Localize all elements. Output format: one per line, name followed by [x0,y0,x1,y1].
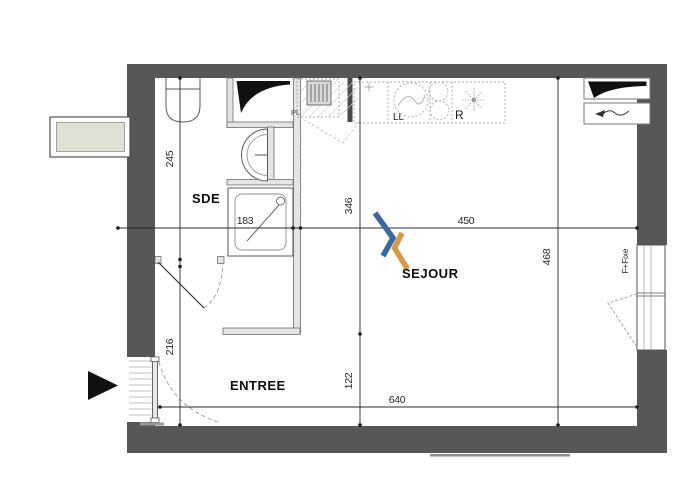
corner-shelf-icon [237,81,291,113]
dim-label-216: 216 [164,338,176,355]
dim-label-468: 468 [541,248,553,265]
door-threshold [140,423,164,426]
label-fridge: R [455,108,464,122]
entrance-door-swing [159,362,221,423]
logo-blue-chevron [375,213,393,256]
wall-top [127,64,667,78]
sde-door [158,262,223,308]
planter-inner [57,123,125,152]
water-heater-icon [307,81,331,105]
door-hinge-bottom [151,418,159,423]
floorplan-drawing: SDE ENTREE SEJOUR PL LL R F+Fixe 245 216… [0,0,700,494]
logo-orange-chevron [395,233,408,269]
logo-watermark [375,213,408,269]
floorplan-canvas: SDE ENTREE SEJOUR PL LL R F+Fixe 245 216… [0,0,700,494]
kitchen-zone [297,78,505,143]
dim-label-183: 183 [237,215,254,227]
entrance-arrow-icon [88,371,118,400]
entrance-door [88,357,221,426]
partition-alcove-bottom [227,122,293,128]
sink-cross-icon [365,83,374,92]
room-label-sejour: SEJOUR [402,266,459,281]
dim-ticks [116,76,639,427]
wall-right-lower [637,350,667,453]
wall-left-upper [127,64,155,357]
cooktop-icon [429,82,449,120]
door-jamb-right [218,257,225,264]
french-window [608,245,665,350]
fridge-star-icon [462,88,486,112]
partition-closet-bottom [223,328,300,335]
entrance-door-leaf [153,358,158,422]
dim-label-122: 122 [343,372,355,389]
room-label-entree: ENTREE [230,378,286,393]
dimension-lines [116,76,639,427]
partition-alcove-left [227,78,233,127]
window-swing [608,294,637,347]
dim-label-346: 346 [343,197,355,214]
partition-basin-side [268,127,275,183]
dim-label-245: 245 [164,150,176,167]
planter-box [50,117,130,157]
dim-label-450: 450 [458,215,475,227]
legend-box-vent [584,103,650,124]
wall-bottom [127,426,667,453]
sde-fixtures [158,78,293,308]
door-hinge-top [151,357,159,362]
room-label-sde: SDE [192,191,220,206]
label-window-type: F+Fixe [621,248,630,273]
washbasin-icon [242,129,269,181]
entrance-hatching [129,361,152,415]
dim-label-640: 640 [389,394,406,406]
label-washing-machine: LL [393,112,405,123]
toilet-icon [166,78,200,122]
label-closet: PL [291,108,300,117]
wall-bottom-shadow [430,454,570,457]
